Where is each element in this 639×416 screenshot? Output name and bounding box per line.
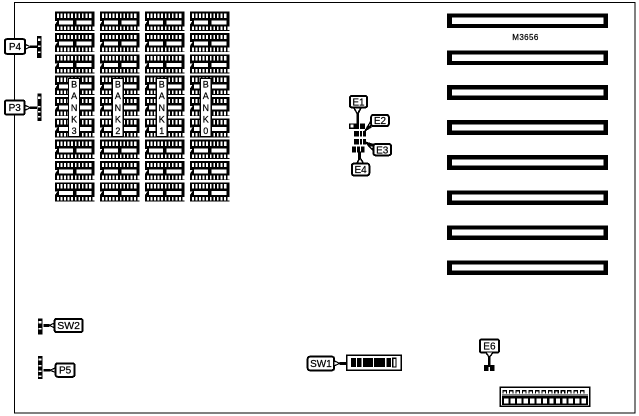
- svg-text:K: K: [115, 114, 121, 124]
- svg-text:N: N: [71, 103, 78, 113]
- svg-text:P4: P4: [9, 42, 22, 53]
- svg-text:2: 2: [115, 126, 120, 136]
- svg-text:A: A: [71, 91, 77, 101]
- svg-text:N: N: [115, 103, 122, 113]
- svg-text:B: B: [203, 80, 209, 90]
- svg-text:A: A: [159, 91, 165, 101]
- svg-text:E6: E6: [483, 342, 496, 353]
- svg-text:A: A: [203, 91, 209, 101]
- svg-text:0: 0: [203, 126, 208, 136]
- svg-text:SW1: SW1: [310, 359, 332, 370]
- svg-text:E4: E4: [354, 165, 367, 176]
- svg-text:N: N: [159, 103, 166, 113]
- svg-text:E2: E2: [374, 116, 387, 127]
- svg-text:3: 3: [72, 126, 77, 136]
- svg-text:E3: E3: [376, 145, 389, 156]
- svg-text:P5: P5: [59, 366, 72, 377]
- svg-text:K: K: [203, 114, 209, 124]
- svg-text:N: N: [203, 103, 210, 113]
- svg-text:SW2: SW2: [57, 320, 80, 332]
- svg-text:B: B: [115, 80, 121, 90]
- svg-text:K: K: [159, 114, 165, 124]
- svg-text:1: 1: [159, 126, 164, 136]
- svg-text:K: K: [71, 114, 77, 124]
- svg-text:A: A: [115, 91, 121, 101]
- svg-text:B: B: [71, 80, 77, 90]
- svg-text:E1: E1: [352, 97, 365, 108]
- svg-text:M3656: M3656: [512, 33, 539, 42]
- svg-text:P3: P3: [9, 103, 22, 114]
- svg-text:B: B: [159, 80, 165, 90]
